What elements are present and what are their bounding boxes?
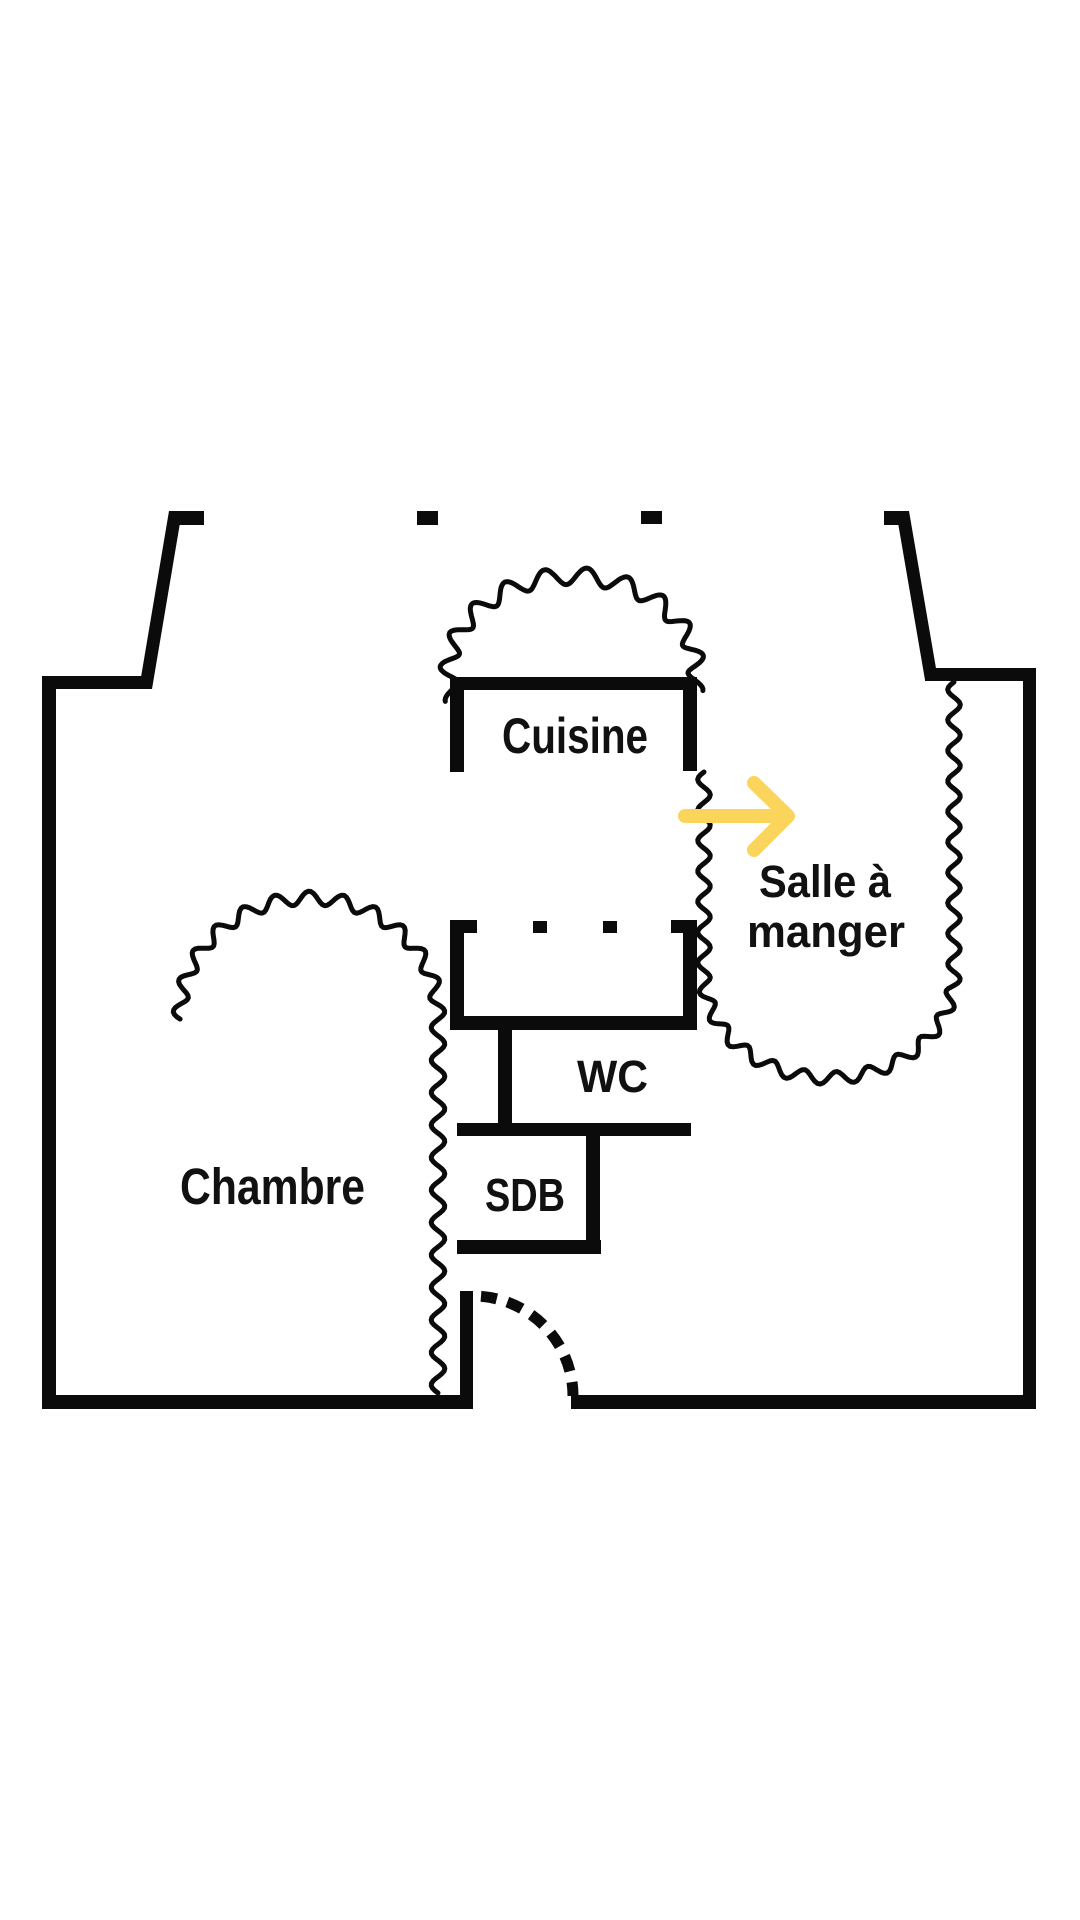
svg-text:WC: WC: [577, 1051, 648, 1102]
svg-text:Salle à: Salle à: [759, 856, 892, 907]
svg-text:Cuisine: Cuisine: [502, 708, 648, 764]
svg-text:SDB: SDB: [485, 1169, 565, 1221]
svg-text:manger: manger: [747, 906, 905, 957]
svg-text:Chambre: Chambre: [180, 1158, 365, 1215]
